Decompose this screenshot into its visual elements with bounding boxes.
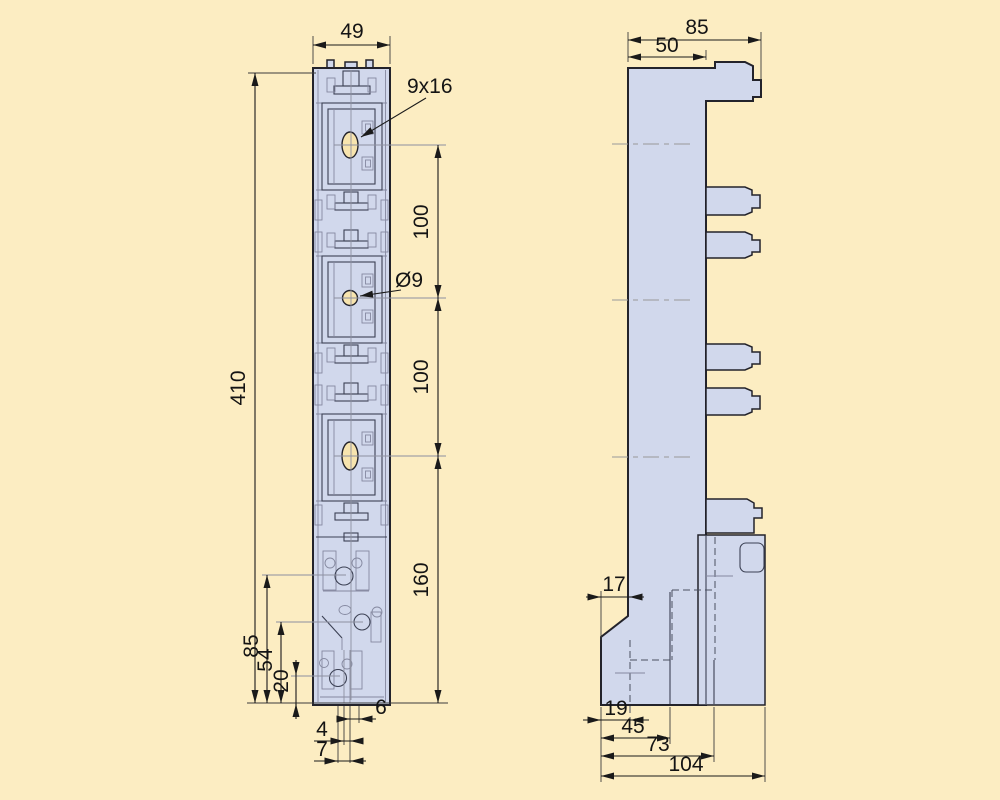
dim-body-depth-label: 50 bbox=[655, 34, 678, 57]
drawing-canvas: 49 410 100 100 160 9x16 Ø9 85 54 bbox=[0, 0, 1000, 800]
dim-slot-6-label: 6 bbox=[375, 696, 387, 719]
side-view: 85 50 17 19 45 73 bbox=[583, 16, 765, 782]
front-view: 49 410 100 100 160 9x16 Ø9 85 54 bbox=[227, 20, 453, 763]
dim-slot-7-label: 7 bbox=[316, 738, 328, 761]
terminal-tab-3 bbox=[706, 344, 760, 370]
terminal-tab-2 bbox=[706, 232, 760, 258]
terminal-tab-1 bbox=[706, 187, 760, 215]
dim-base-45-label: 45 bbox=[621, 715, 644, 738]
base-lower-block bbox=[698, 535, 765, 705]
front-body bbox=[313, 68, 390, 705]
dim-pitch-bottom-label: 100 bbox=[410, 359, 433, 394]
dim-overall-height-label: 410 bbox=[227, 370, 250, 405]
dim-base-104-label: 104 bbox=[668, 753, 703, 776]
dim-base-20-label: 20 bbox=[270, 669, 293, 692]
base-upper-block bbox=[706, 499, 762, 533]
dim-base-73-label: 73 bbox=[646, 733, 669, 756]
dim-foot-offset-label: 17 bbox=[602, 573, 625, 596]
technical-drawing: 49 410 100 100 160 9x16 Ø9 85 54 bbox=[0, 0, 1000, 800]
dim-overall-depth-label: 85 bbox=[685, 16, 708, 39]
dim-pitch-top-label: 100 bbox=[410, 204, 433, 239]
slot-size-label: 9x16 bbox=[407, 75, 453, 98]
dim-width-label: 49 bbox=[340, 20, 363, 43]
hole-size-label: Ø9 bbox=[395, 269, 423, 292]
dim-lower-section-label: 160 bbox=[410, 562, 433, 597]
terminal-tab-4 bbox=[706, 388, 760, 415]
dim-base-54-label: 54 bbox=[254, 648, 277, 672]
